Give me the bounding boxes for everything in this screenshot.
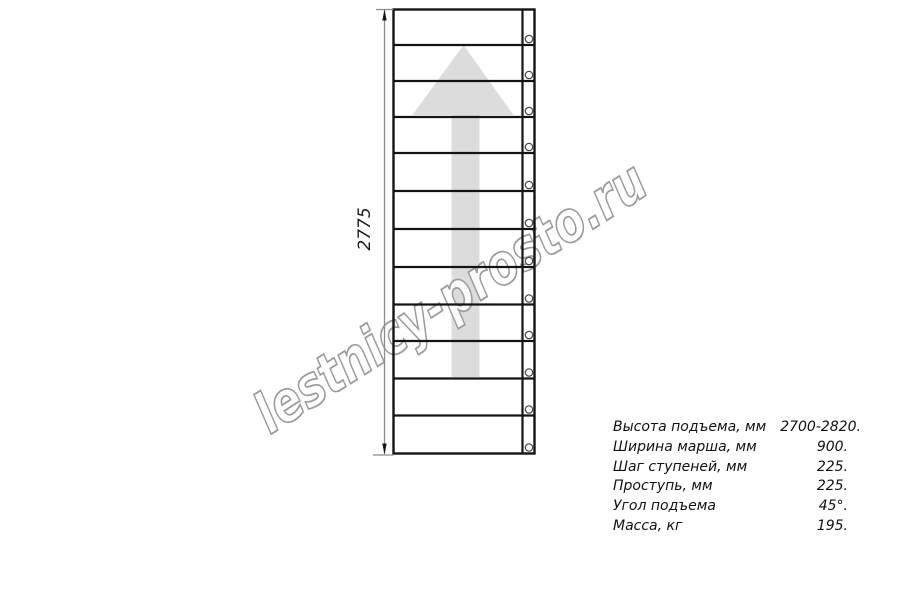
spec-label: Шаг ступеней, мм (613, 458, 747, 478)
bolt-circle (525, 444, 532, 451)
spec-value: 45°. (819, 497, 848, 517)
spec-label: Высота подъема, мм (613, 418, 766, 438)
bolt-circle (525, 257, 532, 264)
bolt-circle (525, 35, 532, 42)
spec-label: Угол подъема (613, 497, 716, 517)
bolt-circle (525, 369, 532, 376)
spec-row: Проступь, мм 225. (613, 477, 848, 497)
bolt-circle (525, 107, 532, 114)
bolt-circle (525, 143, 532, 150)
spec-row: Масса, кг 195. (613, 517, 848, 537)
bolt-circle (525, 406, 532, 413)
spec-value: 900. (817, 438, 848, 458)
spec-value: 2700-2820. (780, 418, 861, 438)
specs-table: Высота подъема, мм 2700-2820. Ширина мар… (613, 418, 848, 537)
spec-row: Высота подъема, мм 2700-2820. (613, 418, 848, 438)
spec-row: Ширина марша, мм 900. (613, 438, 848, 458)
spec-label: Ширина марша, мм (613, 438, 757, 458)
dimension-arrowhead-up (382, 10, 386, 21)
page: lestnicy-prosto.ru (0, 0, 900, 600)
dimension-arrowhead-down (382, 444, 386, 455)
height-dimension-label: 2775 (355, 207, 375, 250)
spec-label: Проступь, мм (613, 477, 713, 497)
spec-row: Шаг ступеней, мм 225. (613, 458, 848, 478)
spec-value: 225. (817, 458, 848, 478)
bolt-circle (525, 331, 532, 338)
site-watermark: lestnicy-prosto.ru (243, 149, 659, 447)
watermark-text: lestnicy-prosto.ru (243, 149, 659, 447)
bolt-circle (525, 295, 532, 302)
bolt-circle (525, 181, 532, 188)
bolt-circle (525, 71, 532, 78)
spec-label: Масса, кг (613, 517, 682, 537)
spec-value: 195. (817, 517, 848, 537)
spec-value: 225. (817, 477, 848, 497)
spec-row: Угол подъема 45°. (613, 497, 848, 517)
bolt-circle (525, 219, 532, 226)
